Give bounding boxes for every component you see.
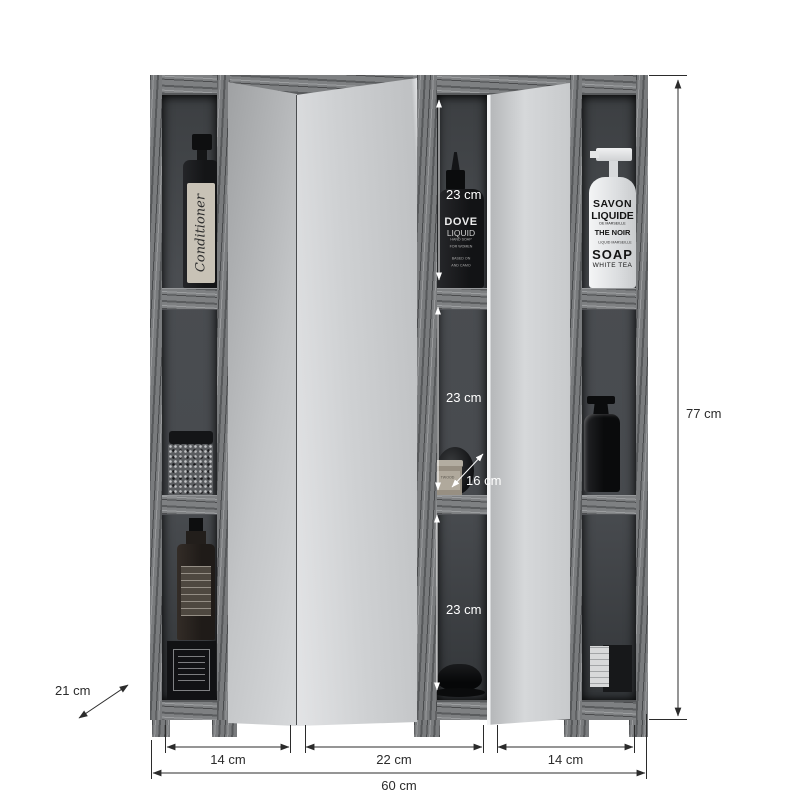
savon-text: SAVON LIQUIDE DE MARSEILLE THE NOIR LIQU… (589, 198, 636, 270)
gift-box (167, 641, 216, 700)
shelf (437, 495, 487, 515)
soap-dish-base (433, 688, 485, 697)
conditioner-bottle: Conditioner (183, 134, 219, 288)
cabinet-right-frame (636, 75, 648, 720)
pump-spout (590, 151, 599, 158)
savon-l2: LIQUIDE (589, 210, 636, 222)
dim-compartment-middle-label: 23 cm (446, 390, 481, 405)
soap-dispenser: SAVON LIQUIDE DE MARSEILLE THE NOIR LIQU… (586, 148, 636, 288)
jar-label: TWOOD (435, 471, 460, 490)
bottle-label (181, 566, 211, 616)
bottle-label: Conditioner (187, 183, 215, 283)
pump-stem (609, 161, 618, 178)
dim-middle-width-label: 22 cm (306, 752, 482, 767)
cabinet-divider-3 (570, 75, 582, 720)
dropper-tip (451, 152, 460, 172)
dim-total-height-label: 77 cm (686, 406, 721, 421)
bifold-fold-line (296, 95, 297, 725)
cabinet-dimension-diagram: Conditioner DOVE LIQUID HAND SOAP FOR WO… (0, 0, 800, 800)
shelf (162, 495, 217, 515)
dove-brand: DOVE (439, 216, 483, 229)
pump-cap (192, 134, 212, 150)
glass-vase (584, 396, 620, 492)
box-label (173, 649, 210, 691)
dim-left-width-label: 14 cm (166, 752, 290, 767)
right-mirror-door (487, 78, 570, 728)
shelf (582, 495, 636, 515)
cabinet-divider-2 (417, 75, 437, 720)
savon-l1: SAVON (589, 198, 636, 210)
glass-jar (168, 431, 213, 495)
vase-rim (587, 396, 615, 404)
dove-sub2: FOR WOMEN (448, 245, 474, 249)
bottle-cap (189, 518, 203, 531)
dove-sub3: BASED ON (448, 257, 474, 261)
savon-l7: WHITE TEA (589, 262, 636, 269)
cabinet-foot (152, 720, 170, 737)
bottle-neck (186, 531, 206, 545)
amber-bottle (177, 518, 215, 640)
dim-depth-label: 21 cm (55, 683, 90, 698)
dove-text: DOVE LIQUID HAND SOAP FOR WOMEN BASED ON… (439, 216, 483, 271)
bifold-door-panel-left (228, 78, 297, 728)
box-front-label (586, 641, 613, 692)
shelf (582, 288, 636, 310)
label-box (586, 641, 632, 692)
savon-l6: SOAP (589, 248, 636, 263)
cabinet-foot (564, 720, 589, 737)
dim-right-width-label: 14 cm (498, 752, 633, 767)
jar-body (168, 444, 213, 495)
savon-l5: LIQUID MARSEILLE (598, 241, 626, 245)
dim-compartment-bottom-label: 23 cm (446, 602, 481, 617)
conditioner-label-text: Conditioner (194, 194, 209, 272)
cabinet-foot (414, 720, 440, 737)
dove-bottle: DOVE LIQUID HAND SOAP FOR WOMEN BASED ON… (438, 152, 484, 288)
jar-lid (169, 431, 213, 444)
bifold-door-panel-right (296, 72, 417, 730)
dim-total-width-label: 60 cm (153, 778, 645, 793)
cabinet-foot (629, 720, 648, 737)
dim-compartment-top-label: 23 cm (446, 187, 481, 202)
dove-sub1: HAND SOAP (448, 238, 474, 242)
dove-sub4: AND CAMO (448, 264, 474, 268)
cabinet-left-frame (150, 75, 162, 720)
savon-l4: THE NOIR (589, 229, 636, 238)
shelf (162, 288, 217, 310)
vase-body (584, 414, 620, 492)
pump-head (596, 148, 632, 161)
soap-dish (437, 664, 482, 690)
jar-label-text: TWOOD (440, 476, 455, 480)
savon-l3: DE MARSEILLE (598, 222, 626, 226)
shelf (437, 288, 487, 310)
dove-type: LIQUID (439, 229, 483, 239)
dim-compartment-depth-label: 16 cm (466, 473, 501, 488)
